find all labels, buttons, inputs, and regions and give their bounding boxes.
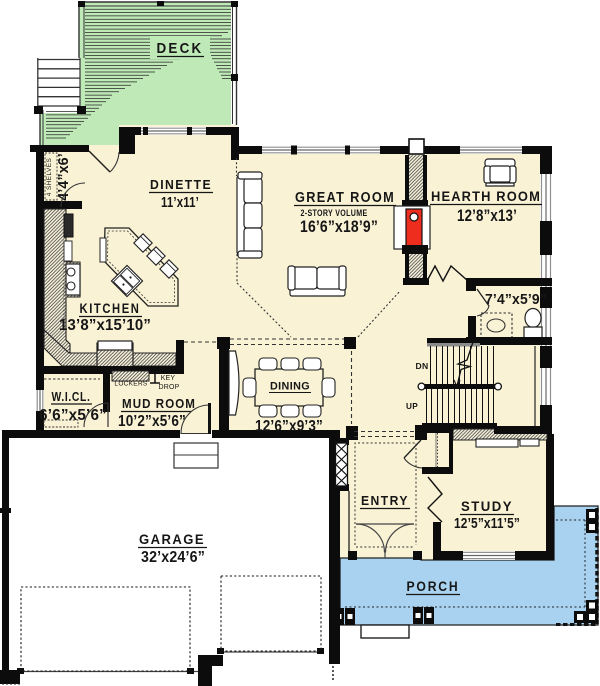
svg-text:STUDY: STUDY [461,499,513,514]
svg-text:DINETTE: DINETTE [150,177,212,192]
svg-text:GARAGE: GARAGE [139,532,205,547]
svg-text:DROP: DROP [158,384,179,391]
svg-text:GREAT ROOM: GREAT ROOM [295,190,395,206]
svg-text:16’6”x18’9”: 16’6”x18’9” [300,218,378,236]
svg-text:13’8”x15’10”: 13’8”x15’10” [59,317,151,334]
svg-text:ENTRY: ENTRY [361,494,409,508]
svg-text:12’5”x11’5”: 12’5”x11’5” [454,515,520,532]
svg-text:7’4”x5’9”: 7’4”x5’9” [485,291,547,308]
svg-text:32’x24’6”: 32’x24’6” [141,549,205,566]
svg-text:W.I.CL.: W.I.CL. [52,390,91,404]
svg-text:6’6”x5’6”: 6’6”x5’6” [39,407,107,424]
svg-text:2-STORY VOLUME: 2-STORY VOLUME [301,208,368,218]
svg-text:KITCHEN: KITCHEN [80,300,141,316]
svg-text:DN: DN [416,361,429,371]
svg-text:11’x11’: 11’x11’ [161,195,199,211]
svg-text:LOCKERS: LOCKERS [114,381,148,388]
svg-text:12’6”x9’3”: 12’6”x9’3” [255,418,323,435]
svg-text:DINING: DINING [270,381,310,393]
svg-text:4’4”x6’: 4’4”x6’ [56,153,72,201]
svg-text:10’2”x5’6”: 10’2”x5’6” [118,413,186,430]
svg-text:PORCH: PORCH [407,579,460,594]
svg-text:HEARTH ROOM: HEARTH ROOM [431,189,541,204]
svg-text:12’8”x13’: 12’8”x13’ [457,207,517,225]
svg-text:KEY: KEY [161,375,176,382]
svg-text:4 SHELVES: 4 SHELVES [46,157,53,196]
svg-text:UP: UP [406,401,418,411]
svg-text:MUD ROOM: MUD ROOM [122,396,196,411]
svg-text:DECK: DECK [157,40,204,57]
